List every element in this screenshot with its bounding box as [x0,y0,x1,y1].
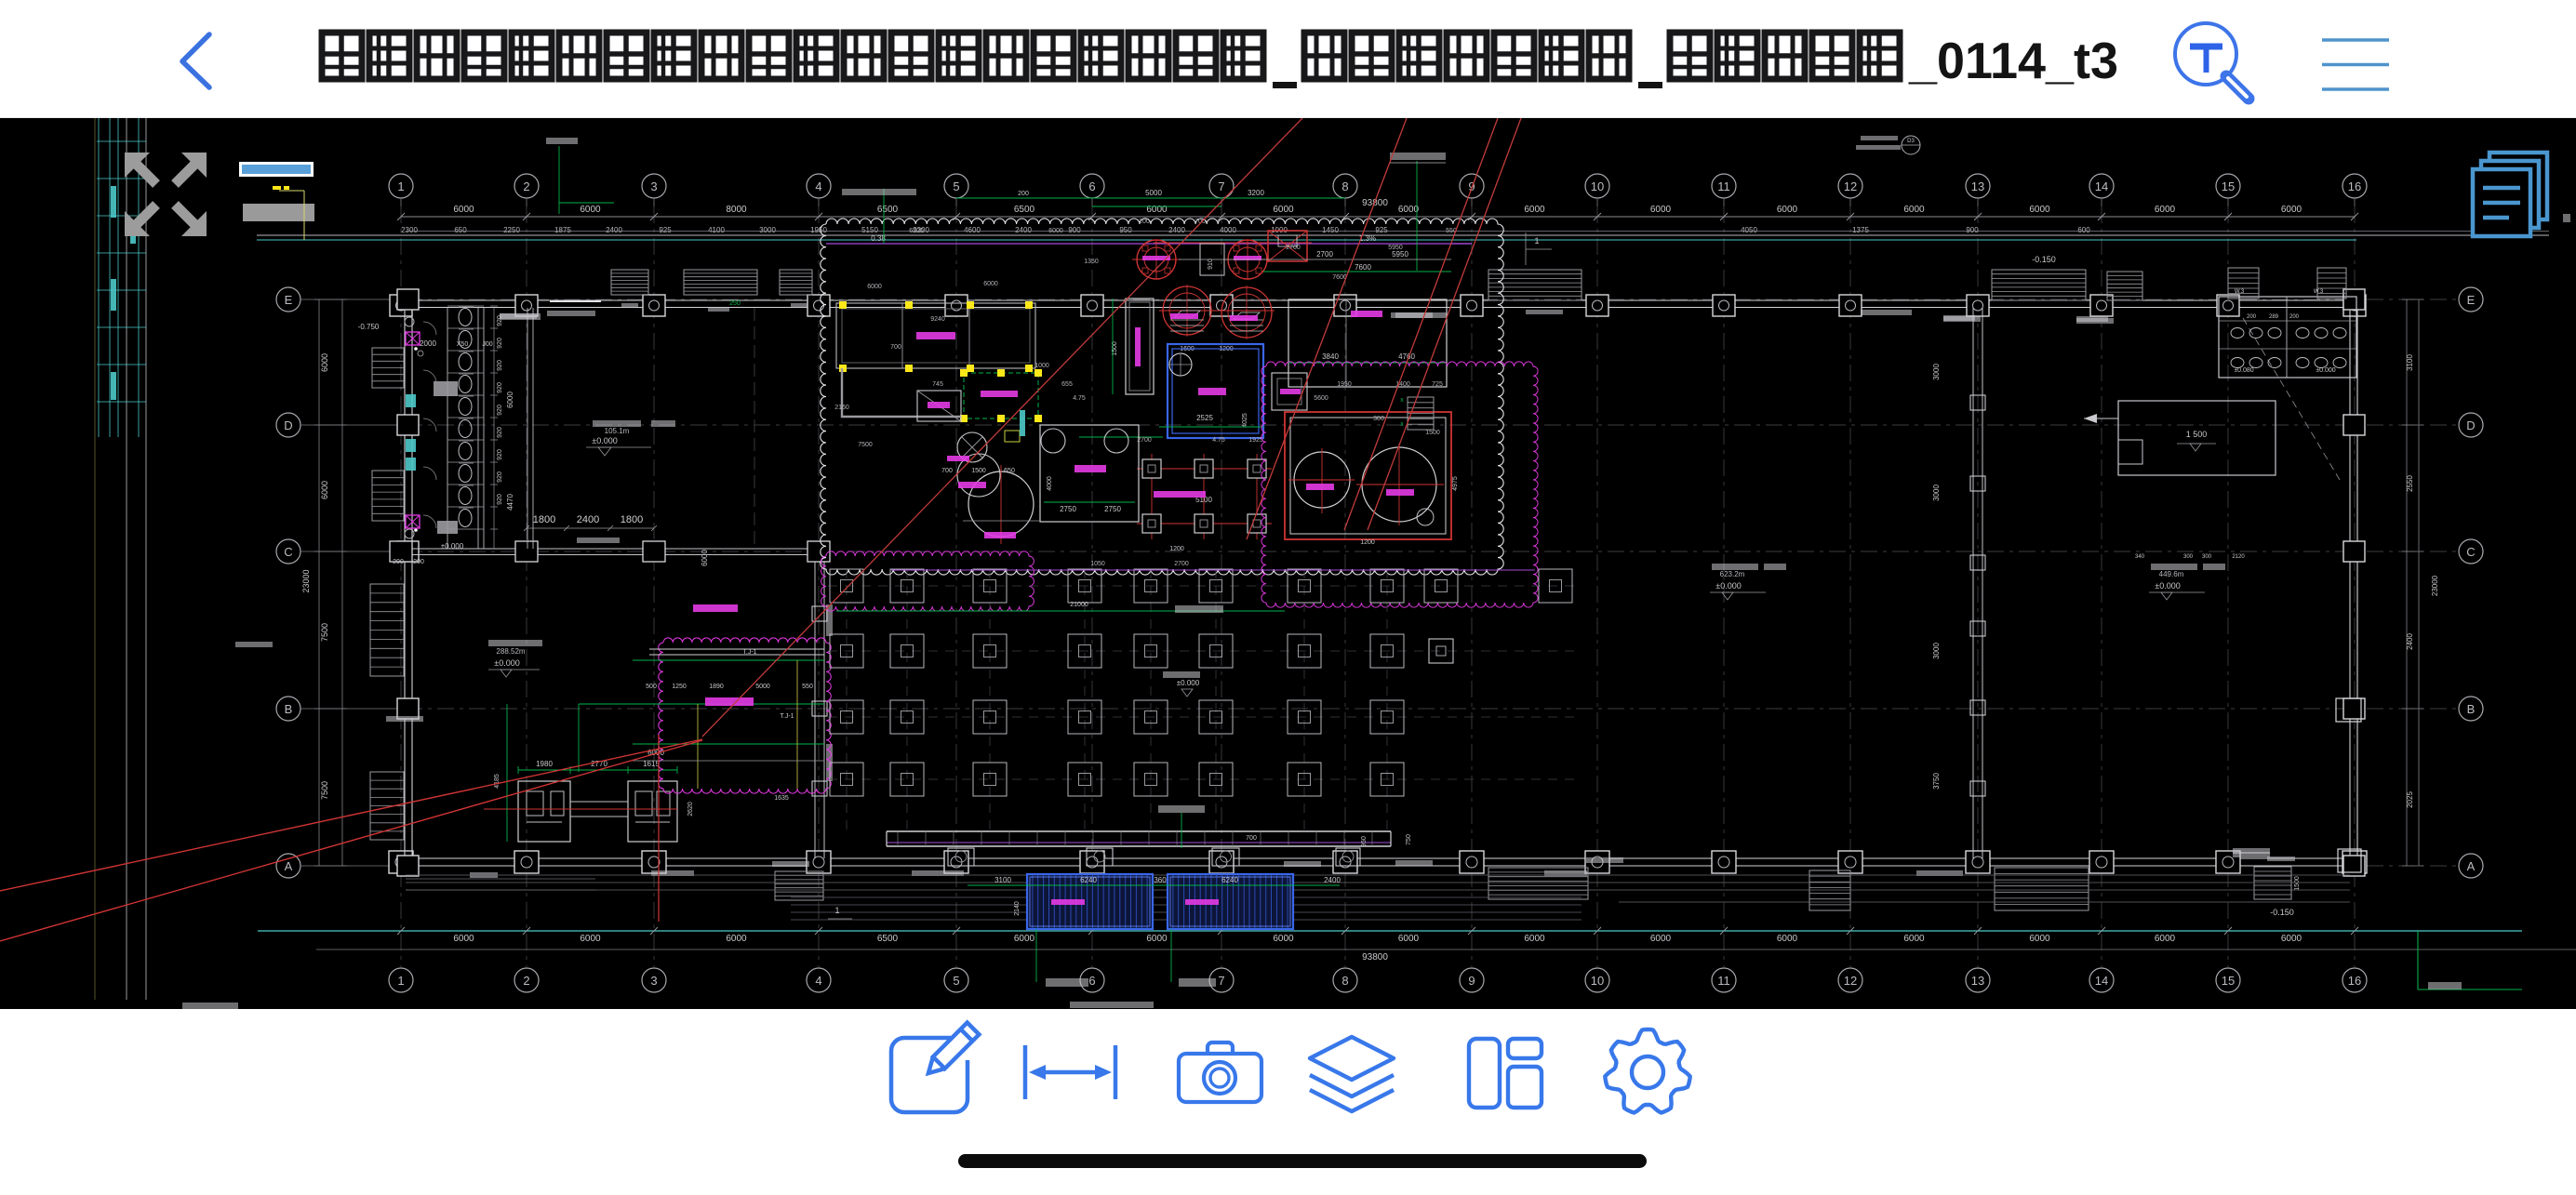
svg-text:2700: 2700 [1316,250,1333,259]
svg-text:920: 920 [497,449,503,460]
svg-text:1950: 1950 [1337,381,1352,388]
svg-text:7500: 7500 [320,781,329,800]
svg-text:3000: 3000 [1932,643,1941,659]
svg-text:4185: 4185 [494,774,501,789]
svg-text:3750: 3750 [1932,773,1941,790]
svg-text:6000: 6000 [320,481,329,499]
svg-text:5: 5 [953,179,959,193]
svg-text:6000: 6000 [2029,934,2050,944]
svg-text:14: 14 [2095,179,2108,193]
svg-text:6000: 6000 [1048,228,1063,234]
svg-text:6000: 6000 [1014,934,1035,944]
svg-text:4.75: 4.75 [1212,437,1225,444]
svg-text:6000: 6000 [1146,934,1168,944]
svg-text:W.3: W.3 [2314,289,2324,295]
svg-text:2400: 2400 [1015,226,1032,234]
svg-text:920: 920 [497,494,503,505]
svg-text:4600: 4600 [964,226,981,234]
svg-text:6000: 6000 [2155,205,2176,215]
svg-text:725: 725 [1432,381,1443,388]
svg-text:6000: 6000 [453,934,474,944]
svg-text:6000: 6000 [580,205,601,215]
svg-text:650: 650 [454,226,467,234]
svg-text:600: 600 [2077,226,2090,234]
svg-text:6500: 6500 [877,934,899,944]
svg-text:4975: 4975 [1452,476,1459,491]
svg-text:8000: 8000 [726,205,747,215]
svg-text:1500: 1500 [971,468,986,474]
svg-text:623.2m: 623.2m [1720,570,1745,578]
svg-text:6000: 6000 [1903,934,1925,944]
svg-text:16: 16 [2348,974,2361,988]
svg-text:11: 11 [1717,974,1730,988]
svg-text:C: C [284,545,292,559]
svg-text:300: 300 [2202,554,2212,560]
svg-text:6000: 6000 [506,392,514,408]
svg-text:2160: 2160 [834,405,849,411]
svg-text:6000: 6000 [1777,934,1798,944]
svg-text:5000: 5000 [1145,189,1162,197]
svg-text:300: 300 [1373,416,1384,422]
svg-text:9: 9 [1468,974,1475,988]
svg-text:93800: 93800 [1362,952,1388,963]
svg-text:700: 700 [890,344,901,351]
svg-text:6000: 6000 [1650,934,1672,944]
svg-text:3100: 3100 [2406,354,2414,371]
svg-text:10: 10 [1591,974,1604,988]
svg-text:750: 750 [1406,834,1412,845]
svg-text:920: 920 [497,405,503,416]
svg-text:13: 13 [1971,974,1984,988]
svg-text:3840: 3840 [1322,352,1339,361]
svg-text:2120: 2120 [2232,554,2245,560]
svg-text:6000: 6000 [2155,934,2176,944]
svg-text:1: 1 [834,906,839,915]
svg-text:B: B [285,702,293,716]
svg-text:950: 950 [1119,226,1132,234]
svg-text:6000: 6000 [2281,934,2302,944]
svg-text:±0.000: ±0.000 [1715,581,1741,591]
svg-text:12: 12 [1844,179,1857,193]
svg-text:23000: 23000 [2431,575,2439,596]
svg-text:1500: 1500 [2294,876,2301,891]
svg-text:2025: 2025 [2406,791,2414,808]
svg-text:T.J-1: T.J-1 [742,649,756,656]
svg-text:21000: 21000 [1070,602,1088,608]
svg-text:6000: 6000 [580,934,601,944]
svg-text:-0.150: -0.150 [2032,255,2056,264]
svg-text:2700: 2700 [1137,437,1152,444]
svg-text:6500: 6500 [877,205,899,215]
svg-text:T.J-1: T.J-1 [780,713,794,720]
svg-text:3200: 3200 [1248,189,1264,197]
svg-text:7: 7 [1218,974,1224,988]
svg-text:2550: 2550 [2406,475,2414,492]
svg-text:±0.000: ±0.000 [494,658,519,668]
svg-text:B: B [2467,702,2476,716]
svg-text:925: 925 [1375,226,1388,234]
svg-text:±0.000: ±0.000 [1177,679,1200,687]
svg-text:5600: 5600 [1314,395,1328,402]
svg-text:4: 4 [815,974,821,988]
svg-text:W.3: W.3 [2235,289,2245,295]
svg-text:4.75: 4.75 [1073,395,1086,402]
svg-text:2700: 2700 [1286,245,1301,251]
svg-text:1450: 1450 [1322,226,1339,234]
svg-text:920: 920 [497,360,503,371]
svg-text:2250: 2250 [503,226,520,234]
svg-text:5150: 5150 [861,226,878,234]
svg-text:7500: 7500 [320,623,329,642]
svg-text:2750: 2750 [1060,505,1076,513]
svg-text:340: 340 [2135,554,2145,560]
svg-text:2000: 2000 [420,339,436,348]
svg-text:2400: 2400 [1324,876,1341,884]
svg-text:700: 700 [941,468,953,474]
svg-text:550: 550 [802,684,813,690]
svg-text:4000: 4000 [1220,226,1236,234]
svg-text:1500: 1500 [1425,430,1440,436]
svg-text:1875: 1875 [554,226,571,234]
svg-text:360: 360 [1154,876,1167,884]
svg-text:200: 200 [2289,314,2300,320]
svg-text:5950: 5950 [1388,245,1403,251]
svg-text:3: 3 [650,974,657,988]
svg-text:1: 1 [397,974,404,988]
svg-text:6000: 6000 [701,550,709,566]
svg-text:4000: 4000 [1047,476,1053,491]
svg-text:4025: 4025 [1242,413,1248,428]
svg-text:910: 910 [1208,259,1214,270]
svg-text:920: 920 [497,338,503,349]
svg-text:3100: 3100 [994,876,1011,884]
svg-text:1635: 1635 [774,795,789,802]
svg-text:D3: D3 [1907,139,1915,144]
svg-text:6000: 6000 [1273,205,1294,215]
svg-text:700: 700 [1246,835,1257,842]
svg-text:105.1m: 105.1m [605,427,630,435]
svg-text:2400: 2400 [606,226,622,234]
svg-text:X50: X50 [457,341,469,348]
svg-text:6000: 6000 [2281,205,2302,215]
svg-text:1050: 1050 [1090,561,1105,567]
svg-text:6240: 6240 [1080,876,1097,884]
svg-text:4470: 4470 [506,494,514,511]
svg-text:1250: 1250 [672,684,687,690]
svg-text:4760: 4760 [1398,352,1415,361]
svg-text:8: 8 [1341,179,1348,193]
svg-text:2140: 2140 [1014,901,1021,916]
svg-text:x: x [1400,397,1404,404]
svg-text:288.52m: 288.52m [496,647,525,656]
svg-text:6000: 6000 [867,284,882,290]
svg-text:950: 950 [1361,836,1368,847]
svg-text:200: 200 [393,559,404,565]
svg-text:2400: 2400 [2406,633,2414,650]
svg-text:5950: 5950 [1392,250,1408,259]
svg-text:2620: 2620 [687,802,694,817]
svg-text:6: 6 [1088,974,1095,988]
svg-text:±0.000: ±0.000 [592,436,617,445]
svg-text:6000: 6000 [726,934,747,944]
svg-text:289: 289 [2269,314,2279,320]
svg-text:745: 745 [932,381,943,388]
svg-text:6000: 6000 [1777,205,1798,215]
svg-text:2: 2 [523,974,529,988]
svg-text:1950: 1950 [810,226,827,234]
svg-text:1980: 1980 [536,760,553,768]
svg-text:250: 250 [729,300,741,307]
svg-text:300: 300 [2183,554,2194,560]
svg-text:6000: 6000 [453,205,474,215]
svg-text:1800: 1800 [621,514,643,525]
svg-text:920: 920 [497,471,503,483]
svg-text:2400: 2400 [1168,226,1185,234]
svg-text:E: E [2467,293,2476,307]
svg-text:±0.000: ±0.000 [2155,581,2180,591]
svg-text:6500: 6500 [1014,205,1035,215]
svg-text:200: 200 [1139,219,1150,225]
svg-text:1890: 1890 [709,684,724,690]
svg-text:1000: 1000 [1034,363,1049,369]
svg-text:1800: 1800 [533,514,555,525]
svg-text:6000: 6000 [2029,205,2050,215]
svg-text:J00: J00 [482,341,492,348]
svg-text:920: 920 [497,382,503,393]
svg-text:1200: 1200 [1360,539,1375,546]
svg-text:6000: 6000 [1524,934,1545,944]
svg-text:2400: 2400 [577,514,599,525]
svg-text:1 500: 1 500 [2186,430,2208,439]
svg-text:A: A [2467,859,2476,873]
svg-text:6: 6 [1088,179,1095,193]
svg-text:6000: 6000 [1398,205,1420,215]
svg-text:10: 10 [1591,179,1604,193]
svg-text:2300: 2300 [401,226,418,234]
svg-text:-0.150: -0.150 [2270,908,2294,917]
svg-text:1350: 1350 [1084,259,1099,265]
svg-text:15: 15 [2222,974,2235,988]
svg-text:3000: 3000 [1932,485,1941,501]
svg-text:13: 13 [1971,179,1984,193]
svg-text:200: 200 [2247,314,2257,320]
svg-text:3000: 3000 [759,226,776,234]
svg-text:D: D [2466,418,2475,432]
svg-text:2750: 2750 [1104,505,1121,513]
svg-text:3000: 3000 [1932,364,1941,380]
svg-text:4: 4 [815,179,821,193]
svg-text:6000: 6000 [1524,205,1545,215]
svg-text:D: D [284,418,292,432]
svg-text:6240: 6240 [1221,876,1238,884]
svg-text:4050: 4050 [1741,226,1757,234]
svg-text:9240: 9240 [930,316,945,323]
svg-text:1375: 1375 [1852,226,1869,234]
svg-text:1200: 1200 [1169,546,1184,552]
svg-text:650: 650 [1004,468,1015,474]
svg-text:200: 200 [413,559,424,565]
svg-text:1: 1 [1534,236,1539,246]
svg-text:11: 11 [1717,179,1730,193]
svg-text:200: 200 [1018,191,1029,197]
svg-text:2525: 2525 [1196,414,1213,422]
svg-text:2700: 2700 [1174,561,1189,567]
svg-text:7600: 7600 [1355,263,1371,272]
svg-text:6500: 6500 [909,228,924,234]
svg-text:8: 8 [1341,974,1348,988]
svg-text:920: 920 [497,427,503,438]
svg-text:1: 1 [397,179,404,193]
svg-text:449.6m: 449.6m [2159,570,2184,578]
svg-text:6000: 6000 [983,281,998,287]
svg-text:4100: 4100 [708,226,725,234]
svg-text:C: C [2466,545,2475,559]
svg-text:900: 900 [1966,226,1979,234]
svg-text:12: 12 [1844,974,1857,988]
svg-text:15: 15 [2222,179,2235,193]
svg-text:6000: 6000 [1398,934,1420,944]
svg-text:7: 7 [1218,179,1224,193]
svg-text:5000: 5000 [755,684,770,690]
svg-text:16: 16 [2348,179,2361,193]
svg-text:A: A [285,859,293,873]
svg-text:500: 500 [646,684,657,690]
svg-text:23000: 23000 [301,569,311,592]
svg-text:655: 655 [1061,381,1073,388]
svg-text:925: 925 [659,226,672,234]
svg-text:6000: 6000 [1903,205,1925,215]
svg-text:±0.080: ±0.080 [2234,367,2253,374]
svg-text:x: x [1400,421,1404,428]
svg-text:7500: 7500 [858,442,873,448]
svg-text:3: 3 [650,179,657,193]
svg-text:900: 900 [1068,226,1081,234]
svg-text:±0.000: ±0.000 [2316,367,2335,374]
svg-text:6000: 6000 [1273,934,1294,944]
svg-text:5: 5 [953,974,959,988]
svg-text:±0.000: ±0.000 [441,542,464,551]
svg-text:6000: 6000 [1650,205,1672,215]
svg-text:2: 2 [523,179,529,193]
svg-text:_0114_t3: _0114_t3 [1908,32,2118,89]
svg-text:14: 14 [2095,974,2108,988]
